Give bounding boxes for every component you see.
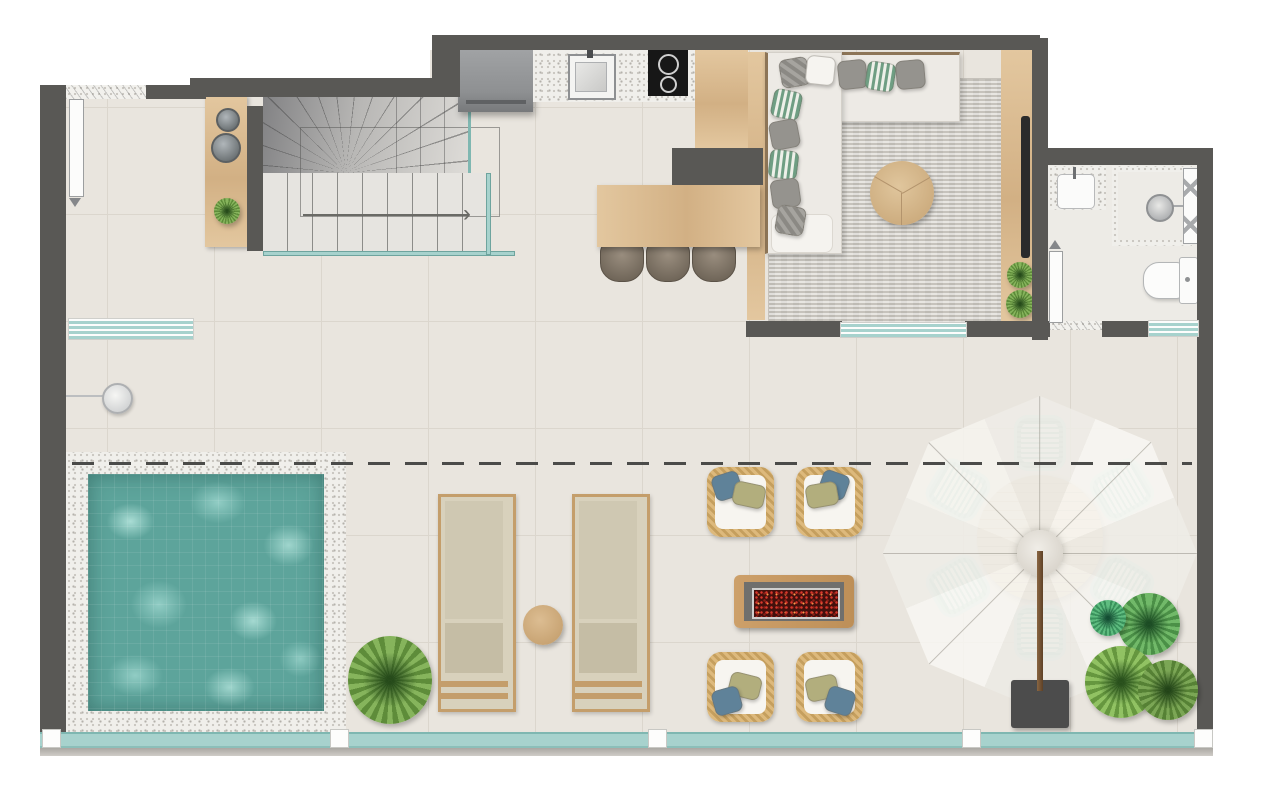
fire-pit-table (734, 575, 854, 628)
lounger-rail (440, 681, 508, 687)
coffee-table-seam (902, 177, 930, 194)
outdoor-shower-arm (66, 395, 106, 397)
staircase: › (263, 97, 500, 255)
stair-direction-arrow: › (463, 200, 471, 228)
lounger-rail (574, 693, 642, 699)
lounger-rail (574, 681, 642, 687)
wall-top-main (432, 35, 1040, 50)
sofa-pillow (767, 117, 801, 151)
sofa-pillow (774, 204, 808, 238)
railing-post (962, 729, 981, 748)
sofa-pillow (864, 60, 897, 93)
console-plant (214, 198, 240, 224)
wall-bathroom-top (1048, 148, 1213, 165)
bathroom-sink (1057, 174, 1095, 209)
entry-threshold-sill (66, 85, 146, 99)
side-table (523, 605, 563, 645)
coffee-table-seam (901, 193, 902, 225)
decor-bowl-small (216, 108, 240, 132)
wall-living-bottom-right (965, 321, 1050, 337)
lounger-rail (440, 693, 508, 699)
sofa-pillow (767, 148, 799, 180)
lounger-seat (579, 623, 637, 673)
glass-railing (40, 732, 1213, 748)
refrigerator-handle (466, 100, 526, 104)
bar-stool (600, 242, 644, 282)
railing-post (330, 729, 349, 748)
toilet-button (1185, 277, 1190, 282)
pool-water (88, 474, 324, 711)
bar-stool (692, 242, 736, 282)
setback-dashed-line (72, 462, 1192, 465)
stair-glass-rail-end (486, 173, 491, 255)
bathroom-faucet (1073, 167, 1076, 179)
decor-bowl-large (211, 133, 241, 163)
shower-glass-panel (1183, 168, 1198, 244)
entry-door-leaf (69, 99, 84, 197)
bathroom-door-leaf (1049, 251, 1063, 323)
sofa-pillow (895, 59, 926, 90)
kitchen-island-wall (672, 148, 763, 185)
railing-post (42, 729, 61, 748)
wall-bathroom-bottom (1102, 321, 1148, 337)
stair-glass-rail-bottom (263, 251, 515, 256)
living-sliding-door-mat (840, 322, 967, 338)
toilet-bowl (1143, 262, 1183, 299)
sun-lounger (572, 494, 650, 712)
coffee-table-seam (874, 176, 902, 193)
floor-plan-canvas: › (0, 0, 1271, 800)
sofa-pillow (805, 55, 837, 87)
glass-bench-louvers (68, 318, 194, 340)
corner-plant-small (1090, 600, 1126, 636)
bathroom-door-swing-arrow (1049, 240, 1061, 249)
stair-direction-line (303, 214, 468, 216)
parasol-pole (1037, 551, 1043, 691)
railing-post (648, 729, 667, 748)
lounger-backrest (445, 501, 503, 619)
cooktop-burner-large (658, 54, 679, 75)
wall-stairs-top (190, 78, 460, 97)
entry-door-swing-arrow (69, 198, 81, 207)
kitchen-cabinet-run (695, 50, 748, 148)
sofa-pillow (769, 87, 803, 121)
cooktop-burner-small (660, 76, 677, 93)
tv-panel (1021, 116, 1030, 258)
lounger-seat (445, 623, 503, 673)
wall-living-bottom-left (746, 321, 842, 337)
shower-head (1146, 194, 1174, 222)
bar-stool (646, 242, 690, 282)
terrace-plant-poolside (348, 636, 432, 724)
tv-console-plant (1007, 262, 1033, 288)
wicker-armchair (707, 652, 774, 722)
tv-console-plant (1006, 290, 1034, 318)
wall-right-exterior (1197, 163, 1213, 733)
corner-plant (1138, 660, 1198, 720)
wicker-armchair (707, 467, 774, 537)
lounger-backrest (579, 501, 637, 619)
coffee-table (870, 161, 934, 225)
wall-living-right (1032, 38, 1048, 340)
railing-shadow-edge (40, 748, 1213, 756)
railing-post (1194, 729, 1213, 748)
kitchen-sink-basin (575, 62, 607, 92)
sun-lounger (438, 494, 516, 712)
dining-table (597, 185, 760, 247)
wall-left-exterior (40, 85, 66, 733)
pool-tile-grid (88, 474, 324, 711)
fire-pit-ember-strip (752, 588, 840, 619)
bathroom-vent-mat (1148, 320, 1199, 337)
wicker-armchair (796, 467, 863, 537)
sofa-pillow (837, 59, 869, 91)
outdoor-shower-head (102, 383, 133, 414)
wall-console-side (247, 106, 263, 251)
wicker-armchair (796, 652, 863, 722)
